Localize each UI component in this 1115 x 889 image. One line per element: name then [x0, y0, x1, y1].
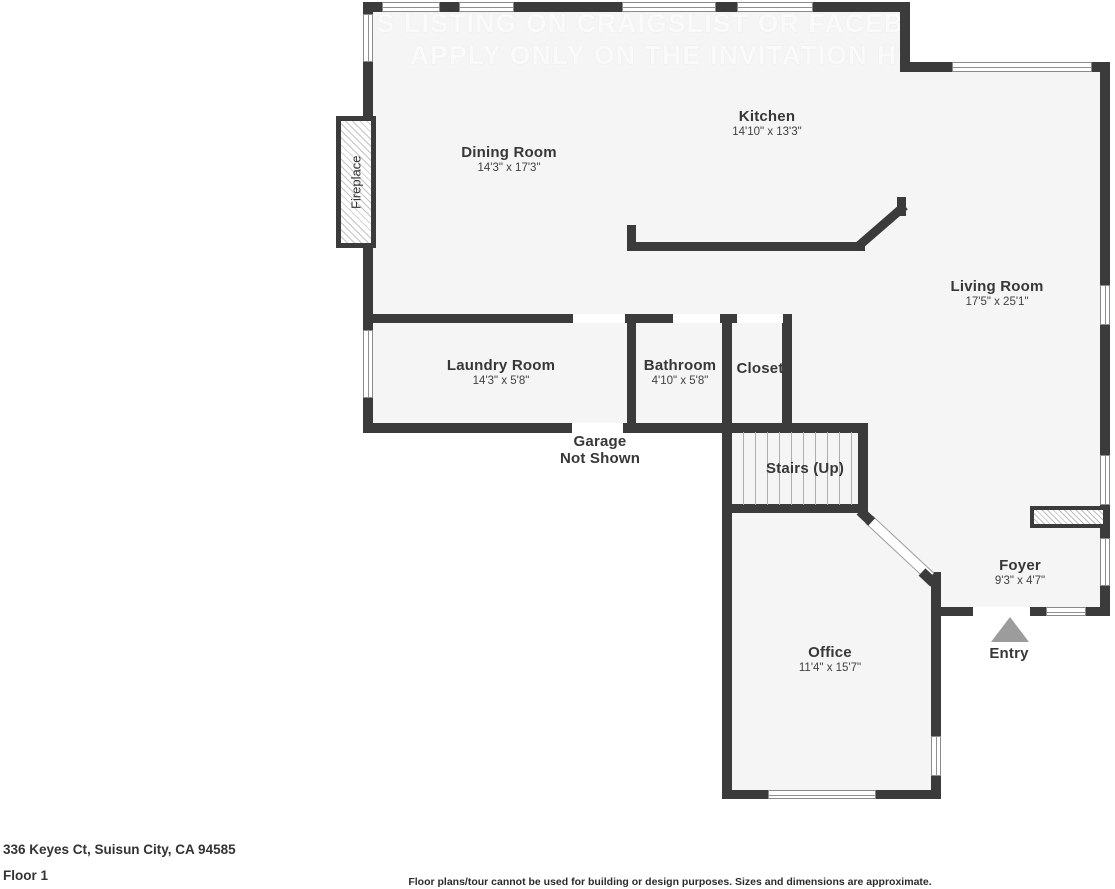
- foyer-dims: 9'3" x 4'7": [995, 575, 1045, 587]
- kitchen-name: Kitchen: [732, 108, 801, 125]
- window-office-bottom: [768, 790, 876, 799]
- label-foyer: Foyer 9'3" x 4'7": [995, 557, 1045, 587]
- hatched-niche-symbol: [1030, 506, 1107, 528]
- label-dining: Dining Room 14'3" x 17'3": [461, 144, 557, 174]
- office-name: Office: [799, 644, 861, 661]
- bathroom-dims: 4'10" x 5'8": [644, 375, 716, 387]
- label-stairs: Stairs (Up): [766, 460, 844, 477]
- label-office: Office 11'4" x 15'7": [799, 644, 861, 674]
- window-living-right-1: [1100, 285, 1110, 325]
- dining-name: Dining Room: [461, 144, 557, 161]
- entry-name: Entry: [989, 645, 1028, 662]
- label-closet: Closet: [736, 360, 783, 377]
- window-top-4: [737, 2, 813, 12]
- address-text: 336 Keyes Ct, Suisun City, CA 94585: [3, 842, 236, 857]
- floor-hall: [788, 315, 908, 435]
- foyer-name: Foyer: [995, 557, 1045, 574]
- window-foyer-bottom: [1046, 607, 1086, 616]
- laundry-door-opening: [573, 314, 625, 323]
- entry-door-opening: [973, 607, 1030, 616]
- window-foyer-right: [1100, 538, 1110, 586]
- office-dims: 11'4" x 15'7": [799, 662, 861, 674]
- disclaimer-text: Floor plans/tour cannot be used for buil…: [230, 876, 1110, 888]
- label-living: Living Room 17'5" x 25'1": [950, 278, 1043, 308]
- watermark: IS LISTING ON CRAIGSLIST OR FACEBOOK M A…: [368, 8, 908, 70]
- label-entry: Entry: [989, 645, 1028, 662]
- garage-door-opening: [572, 423, 623, 433]
- wall-right-living: [1100, 62, 1110, 616]
- bathroom-door-opening: [673, 314, 720, 323]
- window-top-3: [622, 2, 716, 12]
- label-kitchen: Kitchen 14'10" x 13'3": [732, 108, 801, 138]
- window-left-upper: [363, 14, 373, 62]
- laundry-dims: 14'3" x 5'8": [447, 375, 555, 387]
- living-name: Living Room: [950, 278, 1043, 295]
- window-living-right-2: [1100, 455, 1110, 505]
- label-garage: Garage Not Shown: [560, 433, 640, 467]
- window-office-right: [931, 736, 941, 776]
- wall-peninsula: [627, 242, 865, 251]
- wall-bathroom-west: [627, 314, 636, 433]
- wall-closet-west-office-west: [722, 314, 732, 798]
- garage-line1: Garage: [560, 433, 640, 450]
- closet-door-opening: [737, 314, 783, 323]
- watermark-line1: IS LISTING ON CRAIGSLIST OR FACEBOOK M: [368, 8, 908, 39]
- wall-step-topright: [900, 2, 910, 68]
- label-bathroom: Bathroom 4'10" x 5'8": [644, 357, 716, 387]
- dining-dims: 14'3" x 17'3": [461, 162, 557, 174]
- wall-peninsula-stub-left: [627, 225, 636, 251]
- floor-plan: IS LISTING ON CRAIGSLIST OR FACEBOOK M A…: [0, 0, 1115, 889]
- bathroom-name: Bathroom: [644, 357, 716, 374]
- fireplace-label: Fireplace: [336, 116, 376, 248]
- stairs-name: Stairs (Up): [766, 460, 844, 477]
- closet-name: Closet: [736, 360, 783, 377]
- wall-stairs-right: [858, 423, 868, 515]
- floor-number-text: Floor 1: [3, 868, 48, 883]
- wall-peninsula-stub-right: [897, 197, 906, 216]
- watermark-line2: APPLY ONLY ON THE INVITATION HOMES: [410, 40, 908, 70]
- kitchen-dims: 14'10" x 13'3": [732, 126, 801, 138]
- laundry-name: Laundry Room: [447, 357, 555, 374]
- wall-stairs-bottom: [722, 504, 868, 513]
- entry-arrow-icon: [991, 617, 1029, 642]
- window-top-1: [382, 2, 440, 12]
- label-laundry: Laundry Room 14'3" x 5'8": [447, 357, 555, 387]
- window-laundry-left: [363, 330, 373, 398]
- living-dims: 17'5" x 25'1": [950, 296, 1043, 308]
- garage-line2: Not Shown: [560, 450, 640, 467]
- window-top-2: [459, 2, 514, 12]
- window-living-top: [952, 62, 1092, 72]
